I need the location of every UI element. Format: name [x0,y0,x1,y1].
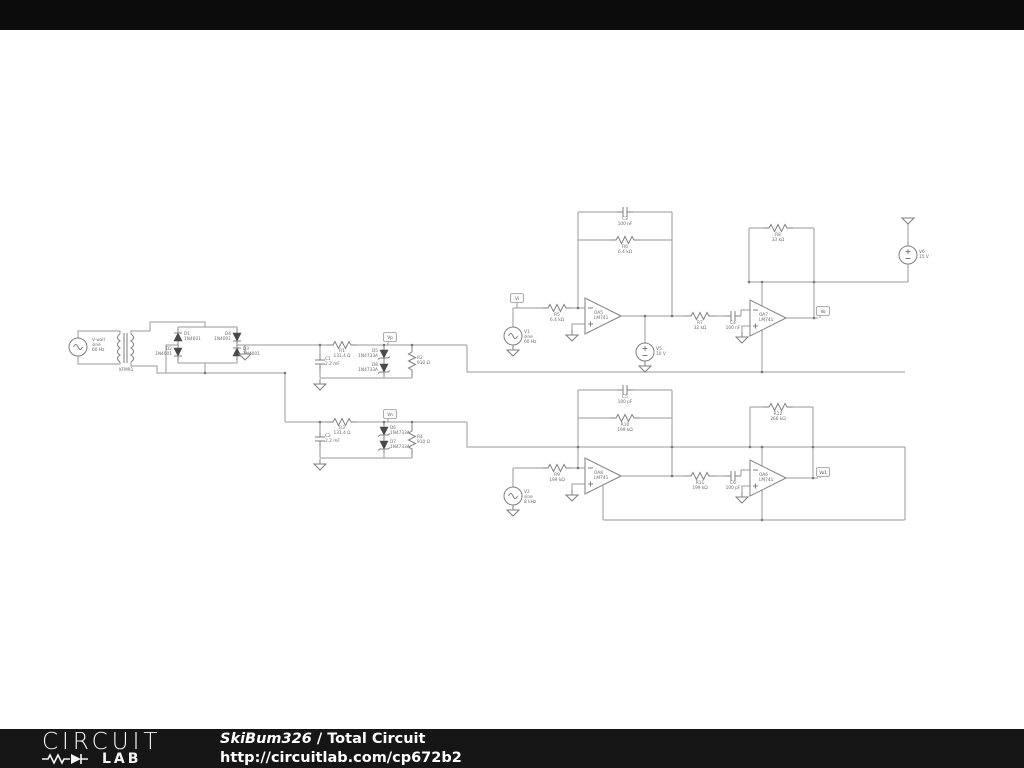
d1-model: 1N4001 [184,336,201,342]
ground-icon [902,218,914,224]
d8-model: 1N4733A [358,367,378,373]
c4-value: 100 nF [726,325,741,331]
capacitor-c3[interactable] [617,207,633,217]
r12-value: 266 kΩ [770,416,786,422]
ground-icon [314,379,326,390]
r11-value: 199 kΩ [692,485,708,491]
top-bar [0,0,1024,30]
zener-d6[interactable] [378,423,390,439]
source-v1[interactable] [504,327,522,345]
r2-value: 910 Ω [417,360,431,366]
ground-icon [507,505,519,516]
diode-d1[interactable] [174,329,182,345]
resistor-r5[interactable] [542,305,572,312]
schematic-svg: V-wall sine 60 Hz XFMR1 D1 1N4001 D4 1N4… [0,30,1024,729]
source-v5[interactable] [636,343,654,361]
xfmr1-ref: XFMR1 [119,367,134,373]
resistor-r7[interactable] [685,313,715,320]
v6-value: 15 V [919,254,929,260]
capacitor-c1[interactable] [315,354,325,370]
wires [78,212,908,520]
ground-icon [736,332,748,343]
c2-value: 2.2 mF [325,438,340,444]
d4-model: 1N4001 [214,336,231,342]
resistor-r10[interactable] [610,415,640,422]
ground-icon [239,349,251,360]
r1-value: 131.4 Ω [334,353,352,359]
r7-value: 32 kΩ [694,325,707,331]
oa5-model: LM741 [594,315,609,321]
r6-value: 6.4 kΩ [618,249,633,255]
resistor-r1[interactable] [327,342,357,349]
logo-lab-text: LAB [102,752,141,766]
vp-label: Vp [387,335,393,340]
ground-icon [566,330,578,341]
zener-d5[interactable] [378,346,390,362]
resistor-diode-icon [42,752,100,766]
vo1-label: Vo1 [819,470,827,475]
circuitlab-screenshot: V-wall sine 60 Hz XFMR1 D1 1N4001 D4 1N4… [0,0,1024,768]
source-vwall[interactable] [69,338,87,356]
vi-label: Vi [515,296,519,301]
author-name: SkiBum326 [220,731,312,747]
project-byline: SkiBum326 / Total Circuit [220,730,462,749]
r8-value: 33 kΩ [772,237,785,243]
c5-value: 100 pF [618,399,633,405]
junction-dots [204,281,816,522]
ground-icon [507,345,519,356]
d2-model: 1N4001 [155,351,172,357]
d5-model: 1N4733A [358,353,378,359]
footer-bar: CIRCUIT LAB SkiBum326 / Total Circuit ht… [0,729,1024,768]
resistor-r3[interactable] [327,419,357,426]
capacitor-c5[interactable] [617,385,633,395]
c6-value: 100 pF [726,485,741,491]
vwall-freq: 60 Hz [92,347,105,353]
resistor-r6[interactable] [610,237,640,244]
oa8-model: LM741 [594,475,609,481]
zener-d7[interactable] [378,437,390,453]
v5-value: 10 V [656,351,666,357]
r3-value: 131.4 Ω [334,430,352,436]
vn-label: Vn [387,412,393,417]
project-url[interactable]: http://circuitlab.com/cp672b2 [220,749,462,768]
resistor-r12[interactable] [763,404,793,411]
resistor-r8[interactable] [763,225,793,232]
r5-value: 6.4 kΩ [550,317,565,323]
vo-label: Vo [821,309,826,314]
d7-model: 1N4733A [390,444,410,450]
resistor-r4[interactable] [409,425,416,455]
capacitor-c2[interactable] [315,431,325,447]
d6-model: 1N4733A [390,430,410,436]
zener-d8[interactable] [378,360,390,376]
transformer-xfmr1[interactable] [118,333,134,363]
c3-value: 100 nF [618,221,633,227]
circuitlab-logo: CIRCUIT LAB [42,731,192,766]
ground-icon [639,361,651,372]
byline-separator: / [312,731,327,747]
c1-value: 2.2 mF [325,361,340,367]
resistor-r2[interactable] [409,346,416,376]
ground-icon [736,492,748,503]
v2-freq: 8 kHz [524,499,537,505]
v1-freq: 60 Hz [524,339,537,345]
capacitor-c6[interactable] [725,471,741,481]
resistor-r9[interactable] [542,465,572,472]
resistor-r11[interactable] [685,473,715,480]
ground-icon [566,490,578,501]
r4-value: 910 Ω [417,439,431,445]
diode-d2[interactable] [174,344,182,360]
source-v2[interactable] [504,487,522,505]
diode-d4[interactable] [233,329,241,345]
capacitor-c4[interactable] [725,311,741,321]
oa6-model: LM741 [759,477,774,483]
source-v6[interactable] [899,246,917,264]
diode-d3[interactable] [233,344,241,360]
ground-icon [314,459,326,470]
schematic-canvas: V-wall sine 60 Hz XFMR1 D1 1N4001 D4 1N4… [0,30,1024,729]
r9-value: 199 kΩ [549,477,565,483]
r10-value: 199 kΩ [617,427,633,433]
project-title: Total Circuit [327,731,425,747]
oa7-model: LM741 [759,317,774,323]
